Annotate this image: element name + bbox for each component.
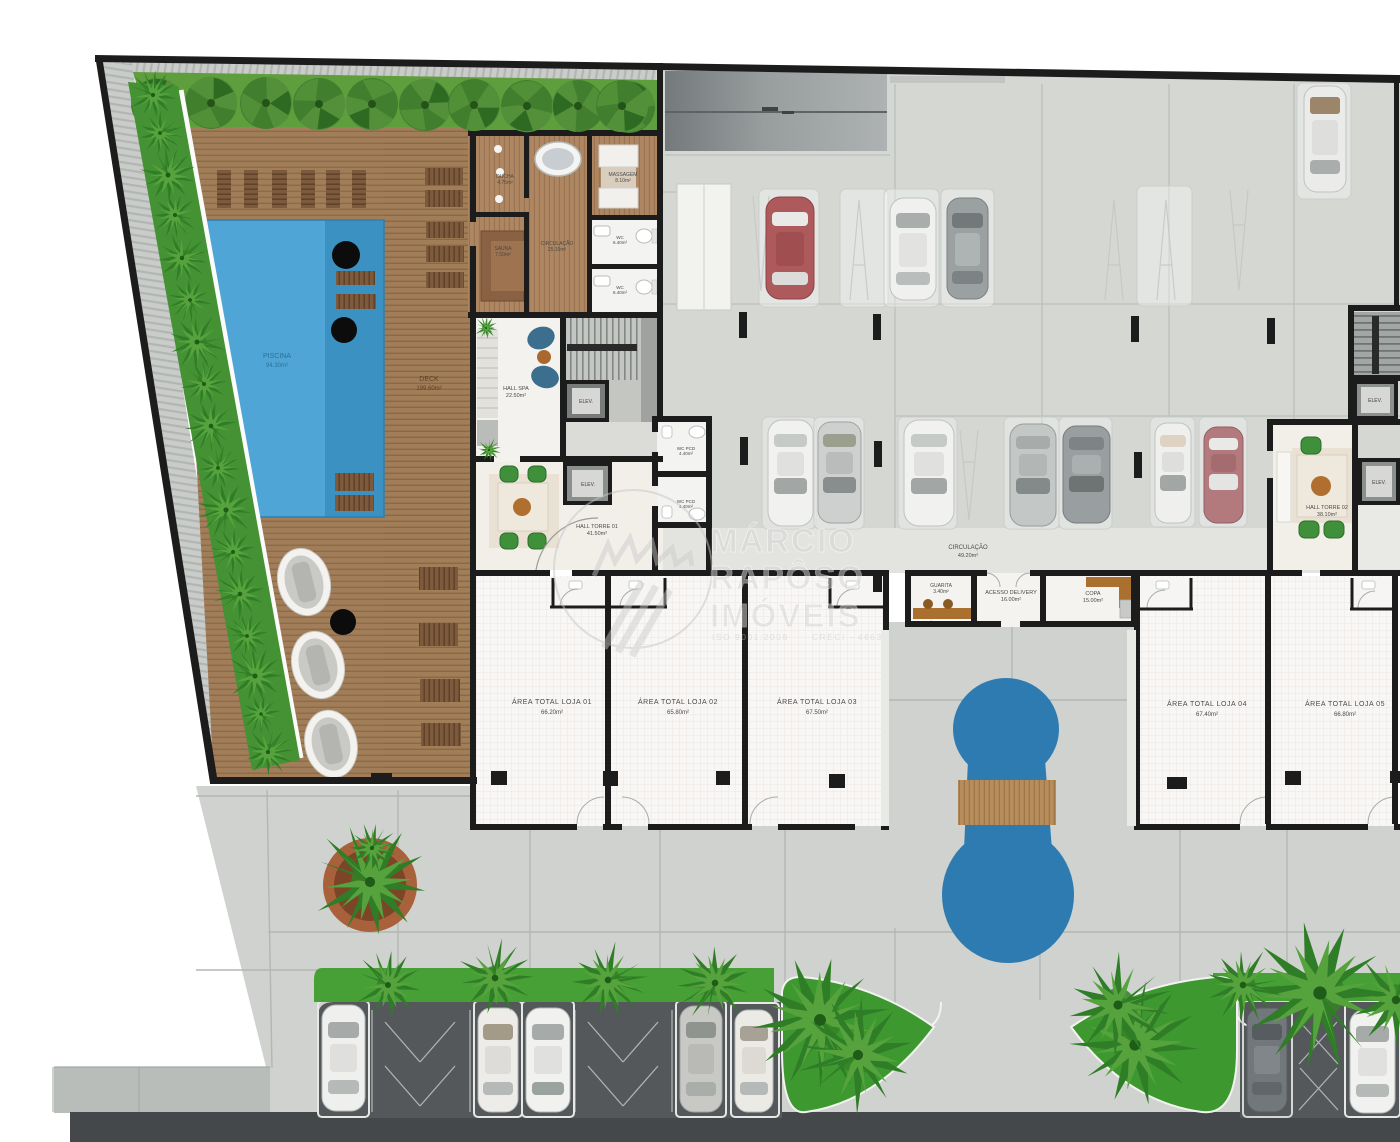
svg-text:ÁREA TOTAL LOJA 01: ÁREA TOTAL LOJA 01 [512, 697, 592, 706]
svg-text:ELEV.: ELEV. [1368, 398, 1382, 404]
svg-text:65.80m²: 65.80m² [667, 710, 689, 716]
svg-text:7.50m²: 7.50m² [495, 252, 511, 258]
svg-text:ÁREA TOTAL LOJA 02: ÁREA TOTAL LOJA 02 [638, 697, 718, 706]
svg-text:199.60m²: 199.60m² [416, 386, 441, 392]
svg-text:4.40m²: 4.40m² [679, 451, 694, 456]
svg-text:IMÓVEIS: IMÓVEIS [710, 597, 862, 634]
svg-text:6.40m²: 6.40m² [613, 240, 628, 245]
svg-text:ÁREA TOTAL LOJA 04: ÁREA TOTAL LOJA 04 [1167, 699, 1247, 708]
svg-text:RAPÔSO: RAPÔSO [710, 558, 865, 596]
svg-text:HALL TORRE 02: HALL TORRE 02 [1306, 505, 1348, 511]
svg-text:66.20m²: 66.20m² [541, 710, 563, 716]
svg-text:4.75m²: 4.75m² [497, 180, 513, 186]
svg-text:66.80m²: 66.80m² [1334, 712, 1356, 718]
svg-text:HALL TORRE 01: HALL TORRE 01 [576, 524, 618, 530]
svg-text:25.15m²: 25.15m² [548, 247, 567, 253]
svg-text:41.50m²: 41.50m² [587, 531, 607, 537]
svg-text:COPA: COPA [1085, 591, 1101, 597]
svg-text:6.40m²: 6.40m² [613, 290, 628, 295]
svg-text:38.10m²: 38.10m² [1317, 512, 1337, 518]
svg-text:CIRCULAÇÃO: CIRCULAÇÃO [948, 544, 988, 551]
svg-text:PISCINA: PISCINA [263, 353, 291, 360]
svg-text:ELEV.: ELEV. [1372, 480, 1386, 486]
svg-text:DECK: DECK [419, 376, 439, 383]
svg-text:67.50m²: 67.50m² [806, 710, 828, 716]
svg-text:ACESSO DELIVERY: ACESSO DELIVERY [985, 590, 1037, 596]
svg-text:49.20m²: 49.20m² [958, 553, 978, 559]
svg-text:15.00m²: 15.00m² [1083, 598, 1103, 604]
svg-text:ELEV.: ELEV. [581, 482, 595, 488]
svg-text:ÁREA TOTAL LOJA 05: ÁREA TOTAL LOJA 05 [1305, 699, 1385, 708]
svg-text:67.40m²: 67.40m² [1196, 712, 1218, 718]
svg-text:ELEV.: ELEV. [579, 399, 593, 405]
svg-text:HALL SPA: HALL SPA [503, 386, 529, 392]
svg-text:CIRCULAÇÃO: CIRCULAÇÃO [541, 240, 574, 247]
svg-text:8.10m²: 8.10m² [615, 178, 631, 184]
svg-text:3.40m²: 3.40m² [933, 589, 949, 595]
svg-text:ISO 9001:2008 CRECI - 466: ISO 9001:2008 CRECI - 4663 [712, 632, 883, 642]
svg-text:MÁRCIO: MÁRCIO [710, 522, 856, 559]
svg-text:94.30m²: 94.30m² [266, 363, 288, 369]
svg-text:ÁREA TOTAL LOJA 03: ÁREA TOTAL LOJA 03 [777, 697, 857, 706]
svg-text:16.00m²: 16.00m² [1001, 597, 1021, 603]
svg-text:22.50m²: 22.50m² [506, 393, 526, 399]
